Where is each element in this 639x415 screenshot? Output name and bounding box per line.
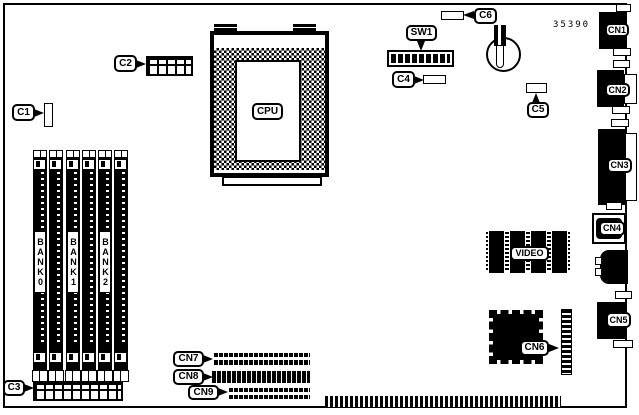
- c6-connector: [441, 11, 464, 20]
- simm-latch: [67, 160, 78, 169]
- video-label: VIDEO: [510, 246, 549, 261]
- simm-cap: [33, 150, 47, 158]
- c5-label: C5: [527, 102, 549, 118]
- c2-pointer: [136, 60, 146, 68]
- simm-latch: [115, 160, 126, 169]
- c5-connector: [526, 83, 547, 93]
- cn6-pointer: [549, 344, 559, 352]
- cn7-pointer: [203, 355, 213, 363]
- simm-latch: [50, 160, 61, 169]
- din-pin-top: [595, 257, 602, 265]
- cn5-mount-tab-top: [615, 291, 632, 299]
- simm-latch: [83, 160, 94, 169]
- cn5-mount-tab-bottom: [613, 340, 633, 348]
- cn2-label: CN2: [605, 83, 630, 97]
- c3-connector: [33, 381, 123, 401]
- sw1-label: SW1: [406, 25, 437, 41]
- simm-latch: [34, 353, 45, 362]
- bank0-label: BANK0: [34, 231, 46, 293]
- cpu-socket-lever-bar: [222, 176, 322, 186]
- c2-connector: [146, 56, 193, 76]
- cn9-pointer: [218, 388, 228, 396]
- simm-cap: [82, 150, 96, 158]
- cn1-mount-tab-top: [616, 4, 631, 12]
- sw1-pointer: [417, 41, 425, 51]
- simm-latch: [50, 353, 61, 362]
- simm-latch: [115, 353, 126, 362]
- cpu-socket-clip-right: [293, 24, 316, 33]
- simm-latch: [67, 353, 78, 362]
- cn3-mount-tab-bottom: [606, 202, 622, 210]
- c6-label: C6: [474, 8, 497, 24]
- cn2-mount-tab-top: [613, 60, 630, 68]
- simm-latch: [34, 160, 45, 169]
- simm-cap: [98, 150, 112, 158]
- simm-slot-4: [82, 150, 96, 370]
- simm-latch: [99, 160, 110, 169]
- cn9-label: CN9: [188, 385, 219, 400]
- battery-clip: [494, 25, 506, 46]
- cn5-label: CN5: [606, 312, 631, 328]
- cn6-connector: [561, 309, 572, 375]
- simm-cap: [66, 150, 80, 158]
- simm-latch: [99, 353, 110, 362]
- cpu-socket-clip-left: [214, 24, 237, 33]
- cn1-label: CN1: [605, 23, 629, 37]
- video-chip-1: [489, 231, 504, 273]
- battery-post: [496, 45, 504, 68]
- cn2-mount-tab-bottom: [612, 106, 630, 114]
- simm-latch: [83, 353, 94, 362]
- part-number: 35390: [553, 20, 590, 30]
- simm-cap: [114, 150, 128, 158]
- cn3-mount-tab-top: [611, 119, 629, 127]
- c1-label: C1: [12, 104, 35, 121]
- cn1-mount-tab-bottom: [613, 48, 631, 56]
- simm-slot-6: [114, 150, 128, 370]
- sw1-dip-switch: [387, 50, 454, 67]
- c4-connector: [423, 75, 446, 84]
- din-connector: [600, 250, 628, 284]
- c4-label: C4: [392, 71, 415, 88]
- cn6-label: CN6: [520, 340, 549, 356]
- cn4-label: CN4: [599, 221, 625, 236]
- cn8-pointer: [203, 373, 213, 381]
- cn8-connector: [211, 371, 310, 383]
- cn3-label: CN3: [607, 158, 632, 173]
- c6-pointer: [463, 11, 474, 19]
- c3-pointer: [24, 384, 34, 392]
- cn8-label: CN8: [173, 369, 204, 385]
- bank1-label: BANK1: [67, 231, 79, 293]
- edge-connector: [325, 396, 561, 407]
- simm-cap: [49, 150, 63, 158]
- cpu-label: CPU: [252, 103, 283, 120]
- motherboard-diagram: 35390 CPU BANK0: [0, 0, 639, 415]
- din-pin-bottom: [595, 268, 602, 276]
- c1-pointer: [34, 109, 44, 117]
- c3-label: C3: [3, 380, 25, 396]
- cn7-label: CN7: [173, 351, 204, 367]
- cn9-connector: [228, 388, 310, 399]
- cn7-connector: [213, 353, 310, 365]
- c4-pointer: [414, 76, 424, 84]
- bank2-label: BANK2: [99, 231, 111, 293]
- simm-slot-2: [49, 150, 63, 370]
- video-chip-4: [552, 231, 567, 273]
- c1-connector: [44, 103, 53, 127]
- c2-label: C2: [114, 55, 137, 72]
